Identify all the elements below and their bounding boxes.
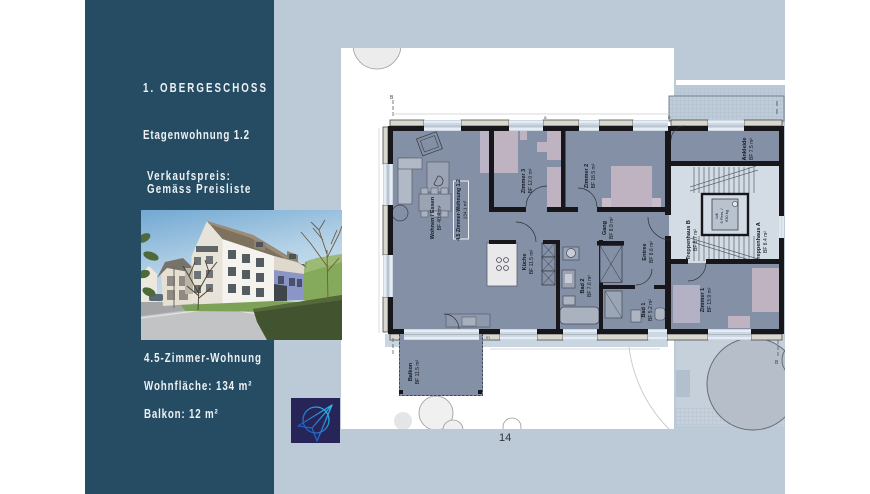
svg-text:BF 8.6 m²: BF 8.6 m² [649,241,655,263]
svg-text:4.5 Zimmer-Wohnung 1.2: 4.5 Zimmer-Wohnung 1.2 [456,179,462,241]
svg-text:Treppenhaus A: Treppenhaus A [756,222,762,262]
svg-text:BF 5.2 m²: BF 5.2 m² [648,299,654,321]
svg-text:m: m [486,335,490,340]
svg-text:14: 14 [499,432,511,444]
svg-text:BF 7.6 m²: BF 7.6 m² [587,275,593,297]
svg-text:BF 40.4 m²: BF 40.4 m² [437,205,443,230]
svg-text:a: a [544,115,547,120]
svg-text:BF 13.9 m²: BF 13.9 m² [707,287,713,312]
svg-text:Balkon: Balkon [408,362,414,381]
svg-text:630 kg: 630 kg [724,210,729,222]
svg-text:BF 8.9 m²: BF 8.9 m² [609,217,615,239]
svg-text:BF 18.5 m²: BF 18.5 m² [591,163,597,188]
svg-text:Bad 1: Bad 1 [641,303,647,318]
svg-text:Entree: Entree [642,243,648,260]
svg-text:BF 8.4 m²: BF 8.4 m² [763,231,769,253]
svg-text:Zimmer 3: Zimmer 3 [521,169,527,193]
svg-text:134.1 m²: 134.1 m² [463,200,468,219]
svg-text:Bad 2: Bad 2 [580,279,586,294]
svg-text:BF 11.5 m²: BF 11.5 m² [415,359,421,384]
svg-text:Zimmer 2: Zimmer 2 [584,164,590,188]
svg-text:BF 8.7 m²: BF 8.7 m² [693,229,699,251]
svg-text:Treppenhaus B: Treppenhaus B [686,220,692,260]
svg-text:BF 7.5 m²: BF 7.5 m² [749,138,755,160]
svg-text:Ankleide: Ankleide [742,138,748,161]
svg-text:BF 11.5 m²: BF 11.5 m² [529,249,535,274]
svg-text:Wohnen / Essen: Wohnen / Essen [430,196,436,239]
svg-text:Zimmer 1: Zimmer 1 [700,288,706,312]
svg-text:Gang: Gang [602,221,608,235]
svg-text:BF 12.0 m²: BF 12.0 m² [528,168,534,193]
svg-text:Küche: Küche [522,254,528,271]
